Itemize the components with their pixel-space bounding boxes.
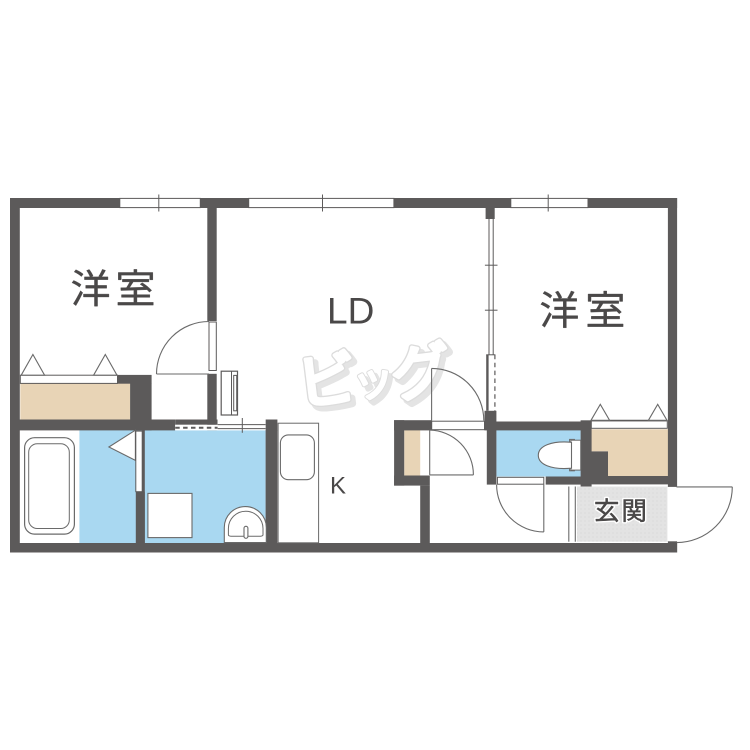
svg-text:LD: LD [327, 291, 374, 332]
svg-text:K: K [330, 473, 346, 500]
